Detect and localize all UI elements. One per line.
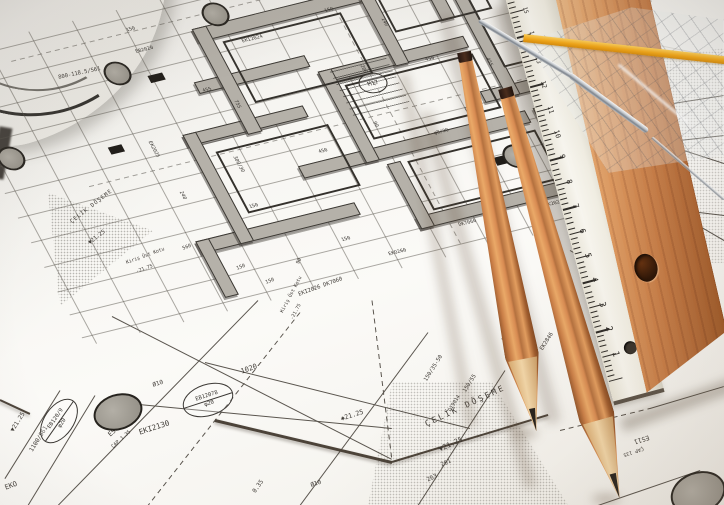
ruler-tick: [577, 261, 584, 264]
ruler-tick: [585, 291, 592, 294]
ruler-number: 7: [571, 203, 581, 210]
ruler-tick: [526, 70, 533, 73]
ruler-tick: [598, 340, 605, 343]
blueprint-annotation: 800-118.5/561: [58, 67, 101, 81]
ruler-tick: [584, 286, 591, 289]
ruler-tick: [554, 173, 561, 176]
ruler-number: 2: [603, 325, 614, 333]
ruler-tick: [594, 325, 601, 328]
ruler-tick: [525, 65, 532, 68]
ruler-tick: [514, 26, 521, 29]
ruler-number: 15: [521, 6, 529, 14]
ruler-number: 1: [609, 350, 620, 358]
ruler-tick: [597, 335, 604, 338]
ruler-tick: [600, 345, 607, 348]
ruler-tick: [605, 364, 612, 367]
blueprint-photo: 4501507551407060DK7060EK2023EK2027EB2020…: [0, 0, 724, 505]
ruler-tick: [508, 1, 515, 4]
ruler-tick: [551, 163, 558, 166]
ruler-tick: [588, 301, 595, 304]
ruler-number: 3: [596, 301, 607, 309]
blueprint-annotation: ES11: [633, 434, 650, 445]
ruler-tick: [571, 237, 578, 240]
ruler-tick: [533, 95, 540, 98]
ruler-tick: [567, 222, 574, 225]
ruler-tick: [538, 114, 545, 117]
plank-hole: [632, 252, 661, 284]
ruler-tick: [531, 90, 538, 93]
ruler-tick: [529, 80, 536, 83]
ruler-tick: [559, 193, 566, 196]
blueprint-annotation: ✱21.25: [340, 409, 364, 422]
ruler-tick: [580, 271, 587, 274]
ruler-tick: [579, 266, 586, 269]
bubble-label: EB12078φ20: [178, 377, 237, 424]
ruler-tick: [546, 144, 553, 147]
blueprint-annotation: 560: [182, 244, 192, 252]
ruler-tick: [606, 369, 613, 372]
ruler-tick: [535, 104, 542, 107]
ruler-tick: [513, 21, 520, 24]
ruler-tick: [540, 124, 547, 127]
ruler-tick: [547, 148, 554, 151]
blueprint-annotation: 0.35: [252, 479, 265, 494]
blueprint-annotation: -21.75: [136, 265, 154, 275]
ruler-number: 10: [552, 129, 562, 139]
blueprint-annotation: EKI2026 DK7060: [298, 277, 343, 298]
ruler-tick: [593, 320, 600, 323]
ruler-tick: [601, 350, 608, 353]
ruler-tick: [564, 212, 571, 215]
blueprint-annotation: -21.75: [291, 304, 303, 322]
ruler-tick: [534, 99, 541, 102]
ruler-tick: [575, 252, 582, 255]
blueprint-annotation: 150: [265, 278, 275, 286]
ruler-tick: [522, 55, 529, 58]
blueprint-annotation: EKO: [4, 481, 18, 492]
ruler-tick: [568, 227, 575, 230]
ruler-tick: [592, 315, 599, 318]
blueprint-annotation: 150: [236, 264, 246, 272]
blueprint-annotation: Ø10: [310, 480, 322, 489]
blueprint-annotation: 90: [296, 258, 303, 266]
ruler-tick: [515, 31, 522, 34]
ruler-number: 5: [583, 252, 594, 259]
ruler-tick: [561, 202, 568, 205]
ruler-tick: [558, 188, 565, 191]
ruler-tick: [573, 247, 580, 250]
blueprint-annotation: 150/35-50: [424, 355, 444, 383]
dimension-line: [0, 399, 30, 415]
ruler-tick: [565, 217, 572, 220]
ruler-tick: [542, 129, 549, 132]
ruler-number: 8: [564, 178, 574, 185]
ruler-tick: [539, 119, 546, 122]
ruler-tick: [590, 310, 597, 313]
ruler-tick: [572, 242, 579, 245]
ruler-tick: [609, 377, 623, 382]
ruler-number: 12: [539, 80, 549, 90]
ruler-tick: [560, 198, 567, 201]
ruler-tick: [604, 359, 611, 362]
ruler-tick: [548, 153, 555, 156]
blueprint-annotation: EK2846: [540, 332, 555, 352]
ruler-tick: [527, 75, 534, 78]
blueprint-annotation: Kiriş Üst Kotu: [126, 248, 166, 266]
ruler-tick: [509, 6, 516, 9]
ruler-tick: [511, 16, 518, 19]
ruler-number: 9: [558, 154, 568, 160]
ruler-number: 4: [590, 276, 601, 283]
ruler-number: 11: [546, 104, 556, 114]
blueprint-annotation: ▼21.25: [10, 412, 27, 434]
ruler-tick: [555, 178, 562, 181]
ruler-tick: [586, 296, 593, 299]
ruler-tick: [581, 276, 588, 279]
ruler-number: 6: [578, 227, 588, 234]
ruler-tick: [544, 139, 551, 142]
ruler-tick: [552, 168, 559, 171]
blueprint-annotation: Ø10: [152, 380, 164, 389]
blueprint-annotation: EKI2130: [138, 419, 170, 436]
ruler-tick: [607, 374, 614, 377]
